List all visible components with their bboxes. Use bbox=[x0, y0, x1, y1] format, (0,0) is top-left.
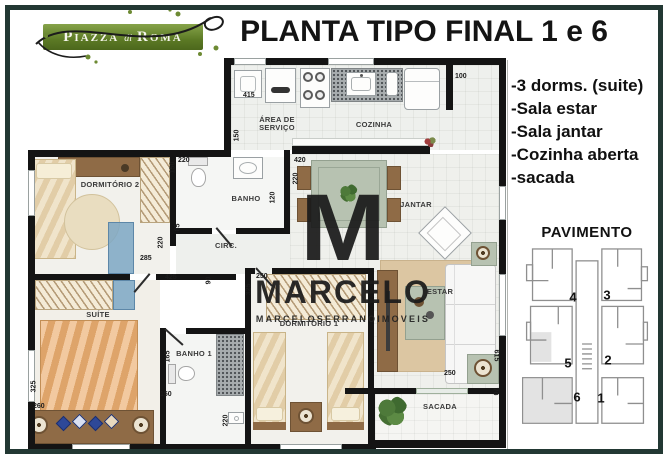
dimension-label: 425 bbox=[165, 274, 177, 281]
room-label-banho1: BANHO 1 bbox=[164, 349, 224, 358]
room-label-text: SERVIÇO bbox=[259, 123, 295, 132]
nightstand bbox=[290, 402, 322, 432]
dimension-label: 220 bbox=[157, 237, 164, 249]
toilet bbox=[188, 157, 208, 166]
window bbox=[72, 444, 130, 451]
window bbox=[499, 274, 506, 336]
bar-flower-decor bbox=[424, 137, 436, 147]
column-divider bbox=[507, 60, 508, 452]
dimension-label: 260 bbox=[33, 403, 45, 410]
wall bbox=[28, 274, 130, 280]
keyplan-unit-number: 1 bbox=[597, 391, 604, 406]
single-bed bbox=[327, 332, 364, 430]
wall bbox=[368, 388, 375, 448]
balcony-door bbox=[416, 388, 468, 394]
feature-item: -Sala estar bbox=[511, 97, 663, 120]
wardrobe bbox=[35, 280, 113, 310]
room-label-servico: ÁREA DE SERVIÇO bbox=[245, 116, 309, 132]
entry-door-gap bbox=[499, 186, 506, 220]
room-label-estar: ESTAR bbox=[418, 287, 462, 296]
feature-item: -Cozinha aberta bbox=[511, 143, 663, 166]
toilet-bowl bbox=[178, 366, 195, 381]
blue-closet-panel bbox=[108, 222, 134, 274]
washing-machine bbox=[265, 68, 296, 103]
room-label-jantar: JANTAR bbox=[394, 200, 438, 209]
dimension-label: 90 bbox=[205, 277, 212, 285]
single-bed bbox=[253, 332, 286, 430]
dining-chair bbox=[387, 166, 401, 190]
dimension-label: 120 bbox=[269, 192, 276, 204]
dimension-label: 220 bbox=[178, 157, 190, 164]
dimension-label: 150 bbox=[233, 130, 240, 142]
keyplan-unit-number: 4 bbox=[569, 290, 576, 305]
kitchen-bar-wall bbox=[292, 146, 430, 154]
keyplan-unit-number: 6 bbox=[573, 390, 580, 405]
wall bbox=[160, 328, 166, 446]
wall bbox=[446, 58, 453, 110]
room-label-circ: CIRC. bbox=[204, 241, 248, 250]
window bbox=[28, 350, 35, 402]
dining-chair bbox=[297, 198, 311, 222]
pavimento-keyplan: PAVIMENTO 435261 bbox=[512, 224, 662, 449]
wall bbox=[186, 328, 248, 334]
wardrobe bbox=[140, 157, 170, 223]
dimension-label: 165 bbox=[164, 351, 171, 363]
dimension-label: 250 bbox=[444, 370, 456, 377]
window bbox=[328, 58, 374, 65]
dimension-label: 150 bbox=[160, 391, 172, 398]
pavimento-title: PAVIMENTO bbox=[512, 224, 662, 241]
window bbox=[280, 444, 342, 451]
bathroom-sink bbox=[228, 412, 244, 424]
feature-item: -Sala jantar bbox=[511, 120, 663, 143]
counter-item bbox=[386, 72, 398, 96]
fridge bbox=[404, 68, 440, 110]
stove bbox=[300, 68, 330, 108]
room-label-dormitorio1: DORMITÓRIO 1 bbox=[252, 319, 366, 328]
room-label-dormitorio2: DORMITÓRIO 2 bbox=[56, 180, 164, 189]
dimension-label: 285 bbox=[140, 255, 152, 262]
dimension-label: 415 bbox=[243, 92, 255, 99]
feature-item: -3 dorms. (suite) bbox=[511, 74, 663, 97]
floorplan: ÁREA DE SERVIÇO COZINHA DORMITÓRIO 2 BAN… bbox=[28, 58, 506, 458]
dimension-label: 70 bbox=[491, 388, 498, 396]
dimension-label: 150 bbox=[169, 162, 176, 174]
window bbox=[28, 170, 35, 216]
side-table bbox=[471, 242, 497, 266]
kitchen-bar-top bbox=[292, 138, 430, 146]
bathroom-sink bbox=[233, 157, 263, 179]
wall bbox=[272, 268, 374, 274]
wardrobe bbox=[266, 274, 366, 320]
feature-item: -sacada bbox=[511, 166, 663, 189]
dimension-label: 220 bbox=[292, 173, 299, 185]
dimension-label: 100 bbox=[455, 73, 467, 80]
page-title: PLANTA TIPO FINAL 1 e 6 bbox=[228, 15, 620, 49]
balcony-plant bbox=[378, 396, 408, 426]
dimension-label: 325 bbox=[30, 381, 37, 393]
keyplan-units: 435261 bbox=[518, 248, 656, 452]
toilet bbox=[168, 364, 176, 384]
room-label-cozinha: COZINHA bbox=[342, 120, 406, 129]
room-label-sacada: SACADA bbox=[398, 402, 482, 411]
window bbox=[234, 58, 266, 65]
wall bbox=[245, 268, 251, 451]
logo-piazza-di-roma: Piazza di Roma bbox=[30, 8, 230, 66]
toilet-bowl bbox=[191, 168, 206, 187]
wall bbox=[284, 150, 290, 234]
keyplan-unit-number: 2 bbox=[604, 353, 611, 368]
double-bed bbox=[40, 320, 138, 412]
feature-list: -3 dorms. (suite) -Sala estar -Sala jant… bbox=[511, 74, 663, 189]
logo-swirl-icon bbox=[30, 8, 230, 66]
wall bbox=[28, 150, 231, 157]
nightstand-lamp bbox=[132, 416, 150, 434]
wall bbox=[224, 58, 231, 157]
tv-cabinet bbox=[377, 270, 398, 372]
keyplan-unit-number: 3 bbox=[603, 288, 610, 303]
wall bbox=[372, 440, 506, 448]
dimension-label: 220 bbox=[222, 415, 229, 427]
room-label-suite: SUÍTE bbox=[56, 310, 140, 319]
kitchen-sink bbox=[346, 72, 376, 96]
wall bbox=[236, 228, 290, 234]
dimension-label: 615 bbox=[492, 350, 499, 362]
wall bbox=[368, 268, 374, 394]
dimension-label: 325 bbox=[245, 284, 252, 296]
screenshot-root: Piazza di Roma PLANTA TIPO FINAL 1 e 6 -… bbox=[0, 0, 668, 459]
shower bbox=[216, 334, 244, 396]
keyplan-unit-number: 5 bbox=[564, 356, 571, 371]
dimension-label: 250 bbox=[256, 273, 268, 280]
blue-closet-panel bbox=[113, 280, 135, 310]
dimension-label: 85 bbox=[174, 224, 181, 232]
dimension-label: 420 bbox=[294, 157, 306, 164]
table-plant bbox=[340, 184, 358, 202]
